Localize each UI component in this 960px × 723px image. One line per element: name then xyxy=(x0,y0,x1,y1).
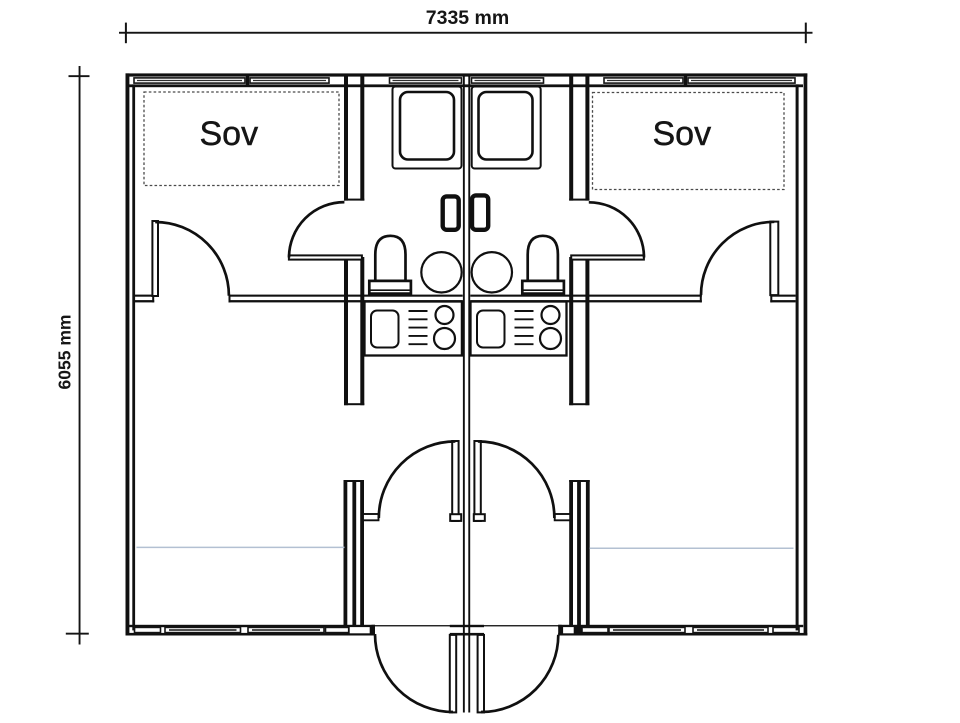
svg-text:Sov: Sov xyxy=(200,115,259,153)
svg-text:7335 mm: 7335 mm xyxy=(426,7,509,29)
svg-text:6055 mm: 6055 mm xyxy=(54,315,74,390)
svg-text:Sov: Sov xyxy=(653,115,712,153)
